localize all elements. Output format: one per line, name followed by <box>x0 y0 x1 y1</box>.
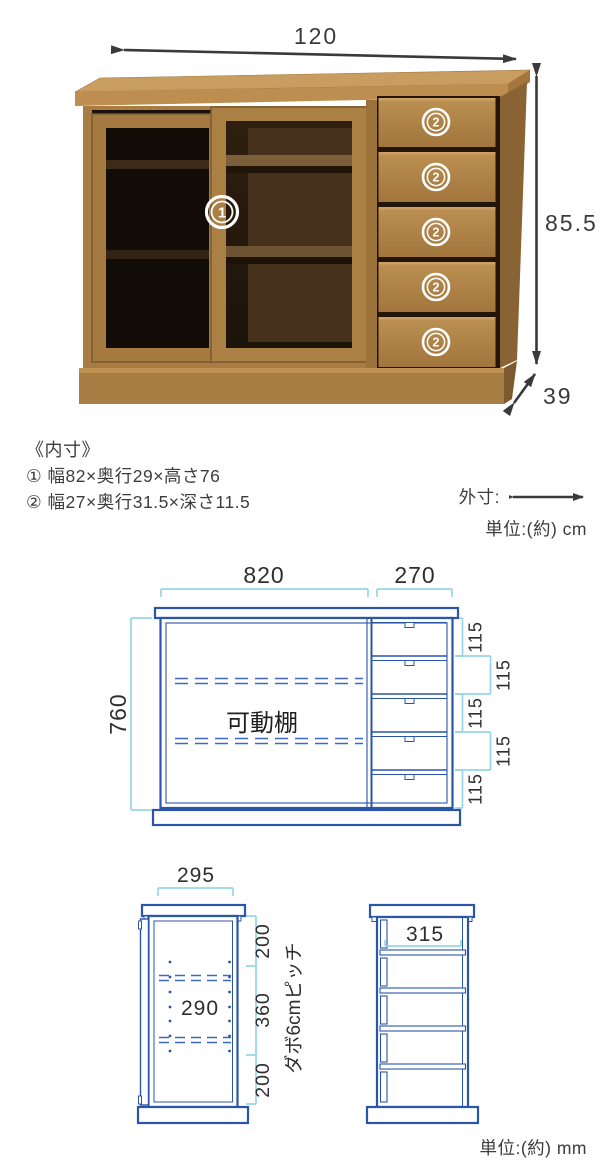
svg-text:115: 115 <box>466 773 486 805</box>
unit-note-cm: 単位:(約) cm <box>459 516 587 541</box>
shelf-bottom-gap-label: 200 <box>252 1062 274 1098</box>
center-stile <box>366 100 378 368</box>
shelf-label: 可動棚 <box>226 710 298 737</box>
drawer-badge-number: 2 <box>433 171 440 185</box>
front-view-diagram: 820 270 760 可動棚 <box>0 545 600 855</box>
cabinet-illustration <box>75 70 530 404</box>
inner-dimension-item-1: ① 幅82×奥行29×高さ76 <box>26 463 250 489</box>
inner-dimensions-heading: 《内寸》 <box>26 437 250 463</box>
depth-label: 39 <box>543 383 573 409</box>
unit-note-mm: 単位:(約) mm <box>479 1135 587 1160</box>
drawer-pitch-labels: 115 115 115 115 115 <box>466 621 514 805</box>
svg-text:115: 115 <box>466 621 486 653</box>
drawer-badge-number: 2 <box>433 226 440 240</box>
product-photo: 1 2 2 2 2 2 120 85.5 39 <box>0 0 600 430</box>
drawer-inner-width-label: 315 <box>406 923 444 946</box>
double-arrow-icon <box>509 490 587 504</box>
svg-text:115: 115 <box>494 659 514 691</box>
base-plinth-side <box>504 361 517 404</box>
svg-text:115: 115 <box>494 735 514 767</box>
opening-height-label: 760 <box>105 693 131 734</box>
drawer-badge-number: 2 <box>433 116 440 130</box>
sliding-door-right <box>211 107 367 362</box>
side-view-diagrams: 295 290 <box>0 850 600 1170</box>
inner-dimensions-block: 《内寸》 ① 幅82×奥行29×高さ76 ② 幅27×奥行31.5×深さ11.5 <box>26 437 250 515</box>
depth-arrow <box>514 374 535 403</box>
width-arrow <box>124 50 516 59</box>
opening-width-label: 820 <box>243 562 284 588</box>
shelf-inner-width-label: 290 <box>181 997 219 1020</box>
height-label: 85.5 <box>545 210 598 236</box>
inner-dimension-item-2: ② 幅27×奥行31.5×深さ11.5 <box>26 489 250 515</box>
drawer-side-view: 315 <box>367 905 478 1123</box>
cabinet-side-panel <box>500 82 527 368</box>
front-view-cabinet <box>153 608 460 825</box>
door-badge: 1 <box>207 197 238 228</box>
outer-dimension-legend: 外寸: 単位:(約) cm <box>459 484 587 541</box>
drawer-badge-number: 2 <box>433 281 440 295</box>
door-badge-number: 1 <box>218 205 226 222</box>
svg-text:115: 115 <box>466 697 486 729</box>
dowel-pitch-note: ダボ6cmピッチ <box>283 943 305 1074</box>
drawer-badge-number: 2 <box>433 336 440 350</box>
shelf-outer-width-label: 295 <box>177 864 215 887</box>
shelf-middle-span-label: 360 <box>252 992 274 1028</box>
shelf-top-gap-label: 200 <box>252 923 274 959</box>
shelf-side-view: 295 290 <box>138 864 305 1123</box>
sliding-door-left <box>92 114 223 362</box>
outer-dimension-label: 外寸: <box>459 484 500 509</box>
drawer-width-label: 270 <box>394 562 435 588</box>
width-label: 120 <box>294 23 338 49</box>
base-plinth <box>79 368 504 404</box>
